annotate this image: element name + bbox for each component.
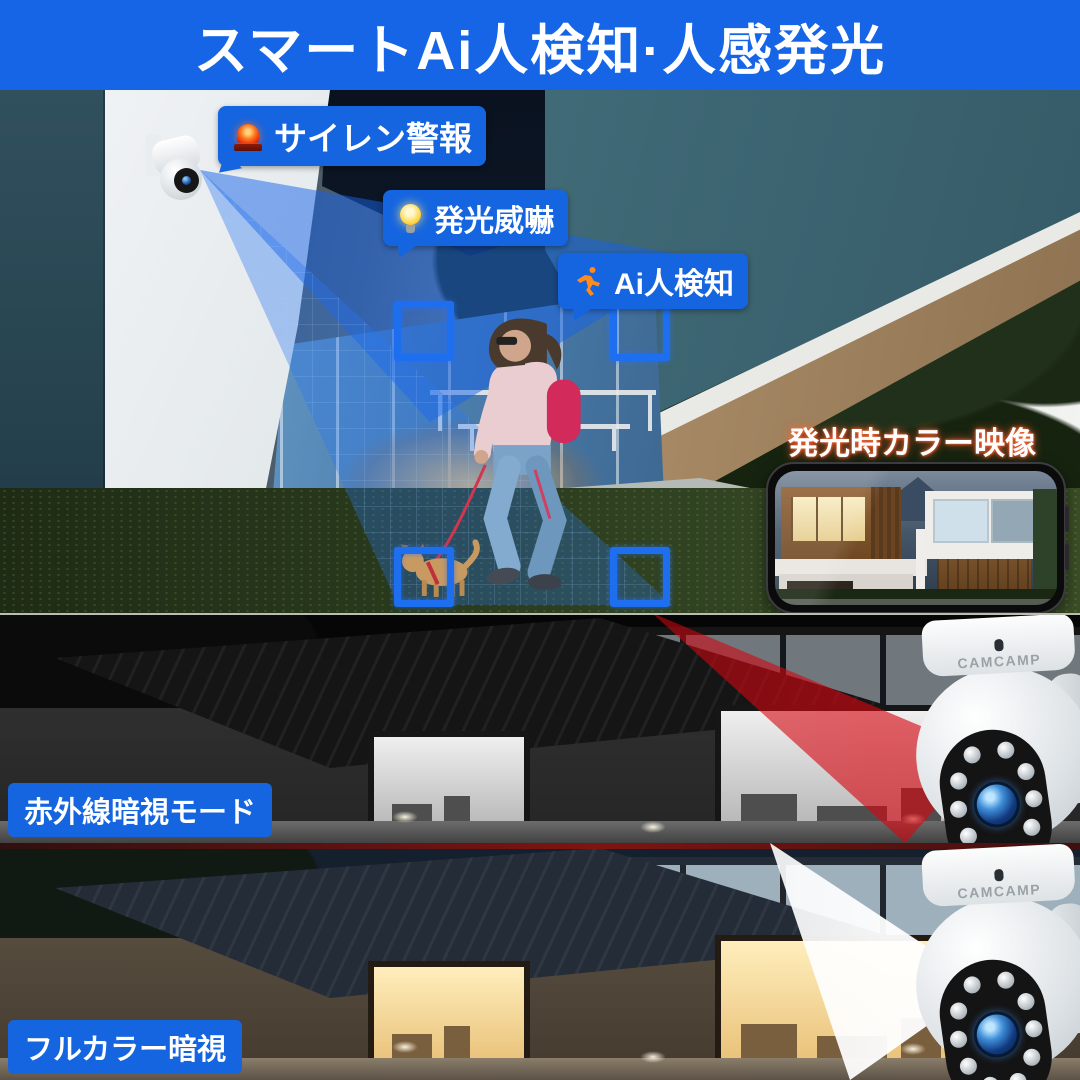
callout-siren: サイレン警報 (218, 106, 486, 166)
camera-head (912, 893, 1080, 1078)
camera-lens-icon (182, 176, 191, 185)
phone-preview (766, 462, 1066, 613)
camera-cap: CAMCAMP (921, 843, 1076, 907)
mic-slot-icon (994, 639, 1004, 651)
detection-frame (398, 305, 666, 603)
camera-face (933, 723, 1059, 843)
main-scene: サイレン警報 発光威嚇 Ai人検知 発光時カラー映像 (0, 90, 1080, 613)
security-camera-ad: スマートAi人検知·人感発光 (0, 0, 1080, 1080)
phone-button (1065, 506, 1069, 532)
callout-ai-label: Ai人検知 (614, 259, 734, 303)
camera-face (933, 953, 1059, 1080)
phone-screen (775, 471, 1057, 605)
camcamp-camera-color: CAMCAMP (909, 843, 1080, 1080)
banner-title: スマートAi人検知·人感発光 (194, 6, 886, 85)
mic-slot-icon (994, 869, 1004, 881)
runner-icon (572, 265, 604, 297)
callout-siren-label: サイレン警報 (274, 112, 472, 160)
lit-window-left (368, 961, 530, 1072)
camera-head (912, 663, 1080, 843)
full-color-band: CAMCAMP フルカラー暗視 (0, 843, 1080, 1080)
brand-logo: CAMCAMP (957, 651, 1041, 671)
bulb-icon (397, 203, 424, 233)
ir-night-vision-band: CAMCAMP 赤外線暗視モード (0, 613, 1080, 843)
callout-ai: Ai人検知 (558, 253, 748, 309)
brand-logo: CAMCAMP (957, 881, 1041, 901)
phone-button (1065, 544, 1069, 570)
ir-mode-label: 赤外線暗視モード (8, 783, 272, 837)
siren-icon (232, 121, 264, 151)
camera-lens-icon (971, 1008, 1023, 1060)
banner: スマートAi人検知·人感発光 (0, 0, 1080, 90)
color-view-caption: 発光時カラー映像 (788, 418, 1036, 463)
callout-flash: 発光威嚇 (383, 190, 568, 246)
full-color-label: フルカラー暗視 (8, 1020, 242, 1074)
camera-cap: CAMCAMP (921, 613, 1076, 677)
camcamp-camera-ir: CAMCAMP (909, 613, 1080, 843)
camera-lens-icon (971, 778, 1023, 830)
callout-flash-label: 発光威嚇 (434, 196, 554, 240)
